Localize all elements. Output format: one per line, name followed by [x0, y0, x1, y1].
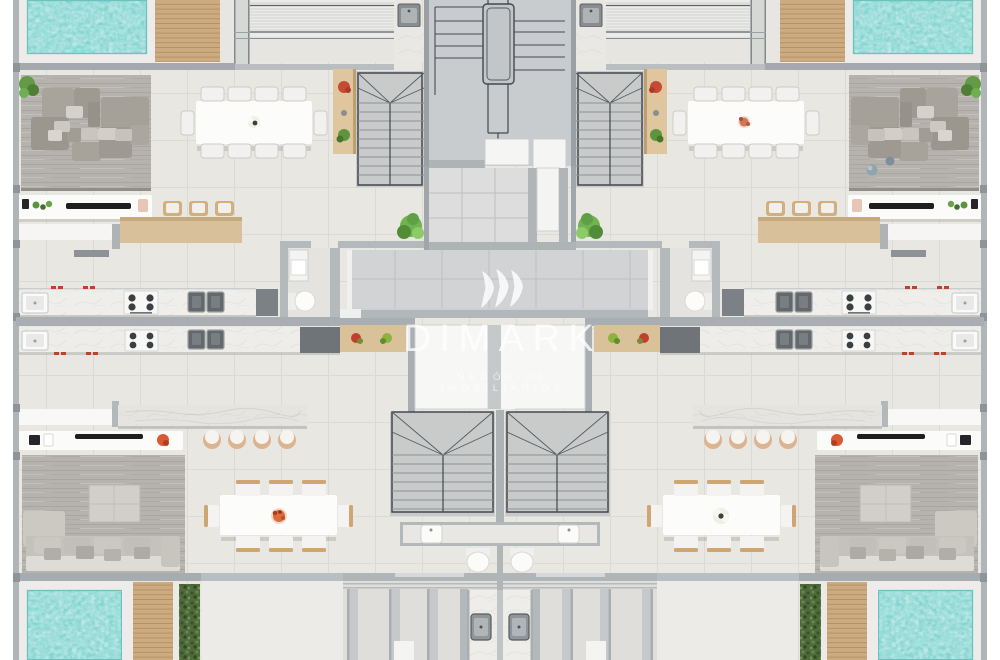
svg-text:NEGÓCIOS: NEGÓCIOS — [457, 372, 548, 383]
svg-text:IMOBILIÁRIOS: IMOBILIÁRIOS — [441, 383, 565, 394]
svg-text:DIMARK: DIMARK — [404, 318, 603, 360]
